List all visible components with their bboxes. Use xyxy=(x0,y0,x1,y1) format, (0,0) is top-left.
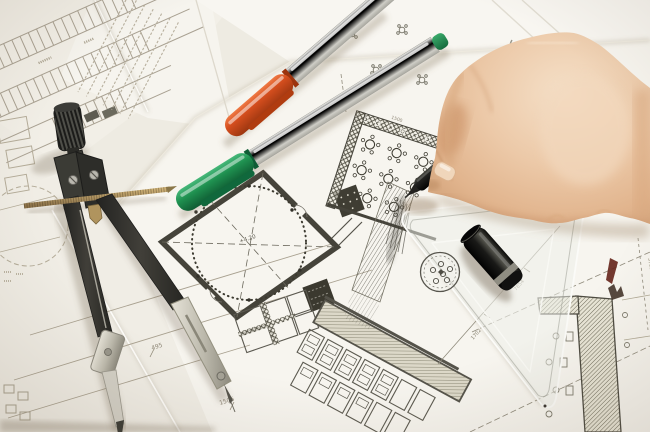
photo-architect-blueprints: 495 1505 +4.20 xyxy=(0,0,650,432)
photo-vignette xyxy=(0,0,650,432)
scene-canvas: 495 1505 +4.20 xyxy=(0,0,650,432)
